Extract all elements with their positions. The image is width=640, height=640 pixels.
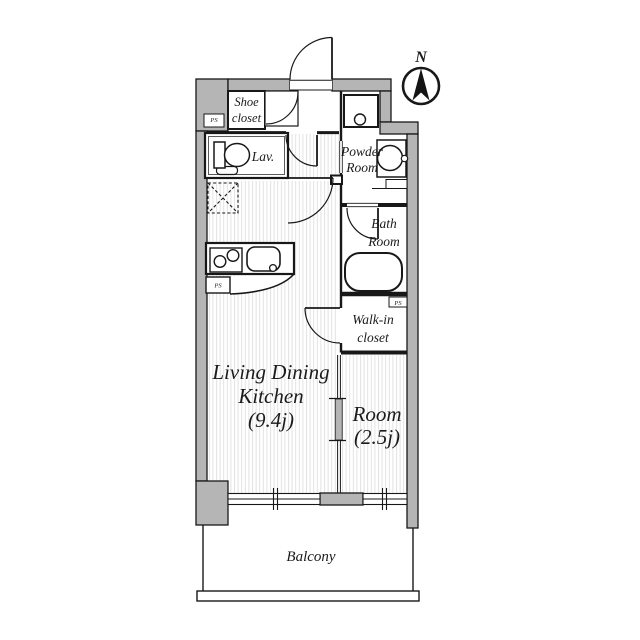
bath-room-label-1: Bath (371, 216, 397, 231)
ldk-label-1: Living Dining (211, 360, 329, 384)
sink-icon (247, 247, 280, 271)
walk-in-closet-label-2: closet (357, 330, 390, 345)
entrance-opening (290, 80, 332, 91)
balcony-label: Balcony (286, 549, 335, 565)
ldk-label-2: Kitchen (237, 384, 303, 408)
bath-door-sill (347, 203, 378, 206)
stove-icon (210, 248, 242, 272)
washing-machine-pan-icon (344, 95, 378, 127)
floor-plan: PS PS (0, 0, 640, 640)
room-label: Room (352, 402, 402, 426)
lavatory-label: Lav. (251, 149, 275, 164)
wall-left (196, 131, 207, 481)
pipe-shaft-label-3: PS (393, 300, 402, 307)
pipe-shaft-label-2: PS (213, 283, 222, 290)
powder-room-label-2: Room (345, 160, 378, 175)
wall-upper-right (380, 91, 391, 122)
wall-top-left (228, 79, 290, 91)
room-size-label: (2.5j) (354, 425, 400, 449)
floor-plan-page: PS PS (0, 0, 640, 640)
wall-right (407, 134, 418, 528)
wall-top-right (332, 79, 391, 91)
compass: N (403, 49, 439, 104)
wall-jog (380, 122, 418, 134)
hall-floor (288, 134, 340, 178)
ldk-size-label: (9.4j) (248, 408, 294, 432)
walk-in-closet-label-1: Walk-in (352, 312, 394, 327)
ldk-floor (207, 181, 337, 493)
sliding-door-panel (335, 399, 342, 440)
pipe-shaft-label-1: PS (209, 117, 218, 124)
powder-room-label-1: Powder (340, 144, 384, 159)
wall-bottom-left-block (196, 481, 228, 525)
shoe-closet-label-2: closet (232, 111, 262, 125)
compass-n-label: N (414, 49, 428, 66)
bath-room-label-2: Room (367, 234, 400, 249)
entrance-door (290, 38, 332, 80)
bathtub-icon (345, 253, 402, 291)
wall-bottom-center (320, 493, 363, 505)
shoe-closet-label-1: Shoe (234, 95, 259, 109)
